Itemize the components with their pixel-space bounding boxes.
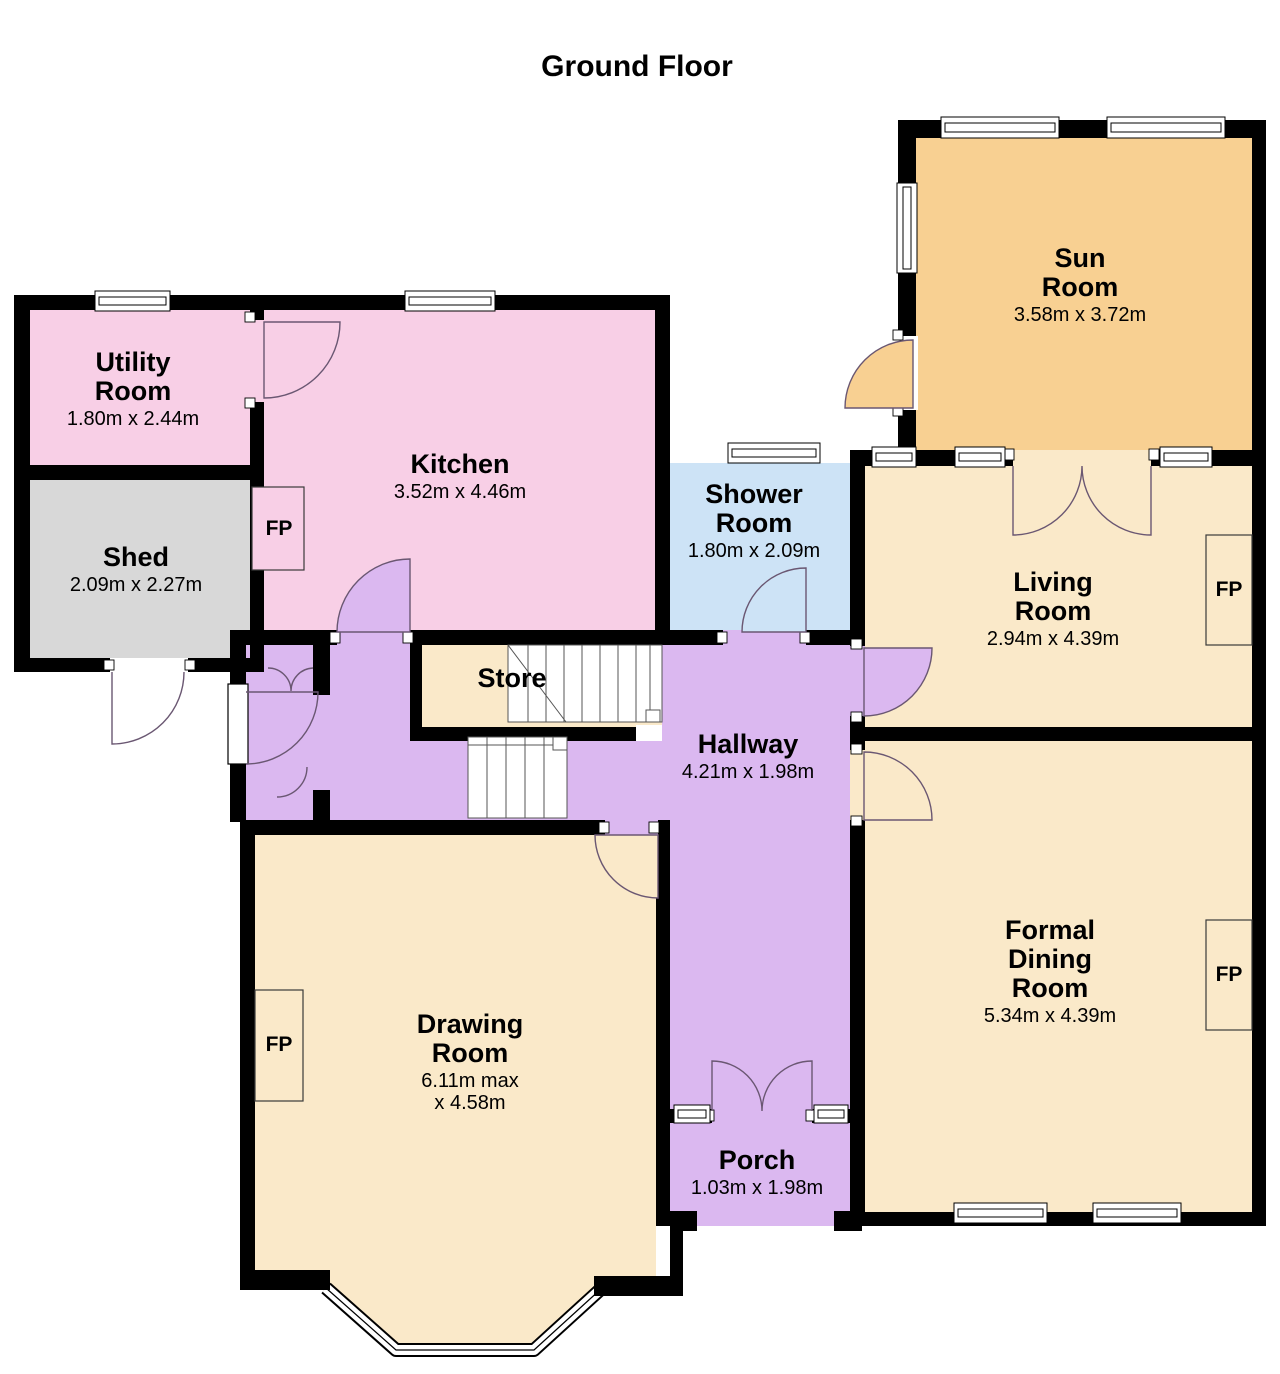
label-store: Store xyxy=(462,664,562,693)
room-name: Living Room xyxy=(1008,568,1098,626)
window-sun-bottom-left xyxy=(955,447,1005,467)
window-shower-top xyxy=(728,443,820,463)
label-utility-room: Utility Room 1.80m x 2.44m xyxy=(67,348,199,430)
bay-window xyxy=(326,1285,602,1350)
window-sun-top-right xyxy=(1107,117,1225,138)
door-sun-exterior xyxy=(845,340,913,408)
label-drawing-room: Drawing Room 6.11m max x 4.58m xyxy=(410,1010,530,1114)
room-name: Utility Room xyxy=(68,348,198,406)
room-dims: 1.80m x 2.09m xyxy=(688,540,820,562)
window-sun-left xyxy=(897,183,917,273)
window-living-top xyxy=(872,447,916,467)
room-name: Shower Room xyxy=(694,480,814,538)
label-sun-room: Sun Room 3.58m x 3.72m xyxy=(1014,244,1146,326)
label-shower-room: Shower Room 1.80m x 2.09m xyxy=(688,480,820,562)
room-dims: 2.09m x 2.27m xyxy=(61,574,211,596)
room-dims: 6.11m max x 4.58m xyxy=(420,1070,520,1114)
label-porch: Porch 1.03m x 1.98m xyxy=(691,1146,823,1199)
room-dims: 5.34m x 4.39m xyxy=(984,1005,1116,1027)
fireplace-label-living: FP xyxy=(1216,578,1243,602)
page-title: Ground Floor xyxy=(541,50,733,84)
room-name: Kitchen xyxy=(380,450,540,479)
door-shed-exterior xyxy=(112,672,184,744)
room-hallway-area xyxy=(670,645,850,1109)
window-kitchen-top xyxy=(405,291,495,311)
room-name: Porch xyxy=(712,1146,802,1175)
room-dims: 3.52m x 4.46m xyxy=(380,481,540,503)
label-formal-dining-room: Formal Dining Room 5.34m x 4.39m xyxy=(984,916,1116,1027)
room-dims: 3.58m x 3.72m xyxy=(1014,304,1146,326)
window-sun-top-left xyxy=(941,117,1059,138)
room-name: Formal Dining Room xyxy=(1000,916,1100,1003)
room-dims: 4.21m x 1.98m xyxy=(682,761,814,783)
room-dims: 1.03m x 1.98m xyxy=(691,1177,823,1199)
label-hallway: Hallway 4.21m x 1.98m xyxy=(682,730,814,783)
label-kitchen: Kitchen 3.52m x 4.46m xyxy=(380,450,540,503)
label-shed: Shed 2.09m x 2.27m xyxy=(61,543,211,596)
room-name: Sun Room xyxy=(1040,244,1120,302)
window-utility-top xyxy=(95,291,170,311)
label-living-room: Living Room 2.94m x 4.39m xyxy=(987,568,1119,650)
fireplace-label-kitchen: FP xyxy=(266,517,293,541)
room-name: Shed xyxy=(61,543,211,572)
floor-plan: Ground Floor Utility Room 1.80m x 2.44m … xyxy=(0,0,1280,1374)
room-name: Store xyxy=(462,664,562,693)
room-name: Drawing Room xyxy=(410,1010,530,1068)
room-dims: 2.94m x 4.39m xyxy=(987,628,1119,650)
room-name: Hallway xyxy=(683,730,813,759)
fireplace-label-drawing: FP xyxy=(266,1033,293,1057)
lobby-area xyxy=(246,645,330,822)
fireplace-label-dining: FP xyxy=(1216,963,1243,987)
room-dims: 1.80m x 2.44m xyxy=(67,408,199,430)
window-sun-bottom-right xyxy=(1160,447,1212,467)
